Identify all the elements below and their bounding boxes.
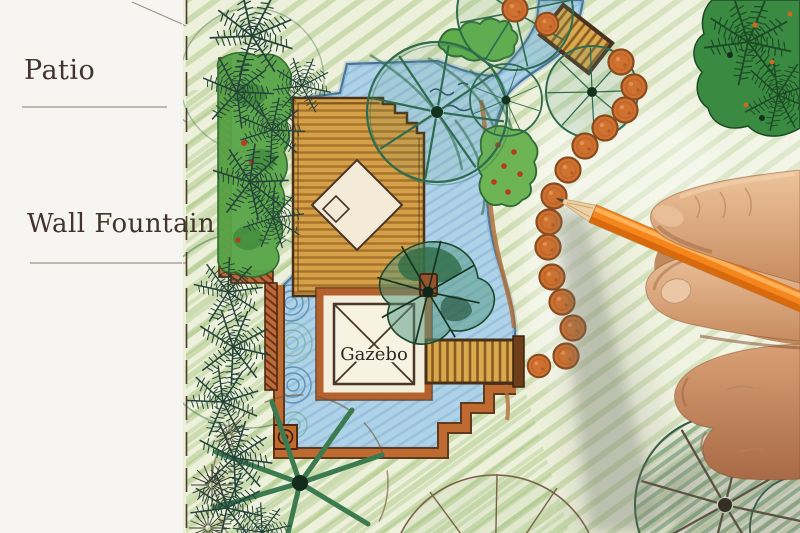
plan-drawing: Gazebo — [0, 0, 800, 533]
gazebo-label: Gazebo — [340, 344, 408, 365]
wall-fountain-label: Wall Fountain — [27, 211, 215, 237]
photo-of-landscape-plan: Gazebo — [0, 0, 800, 533]
boardwalk — [426, 336, 524, 387]
patio-label: Patio — [24, 57, 95, 84]
